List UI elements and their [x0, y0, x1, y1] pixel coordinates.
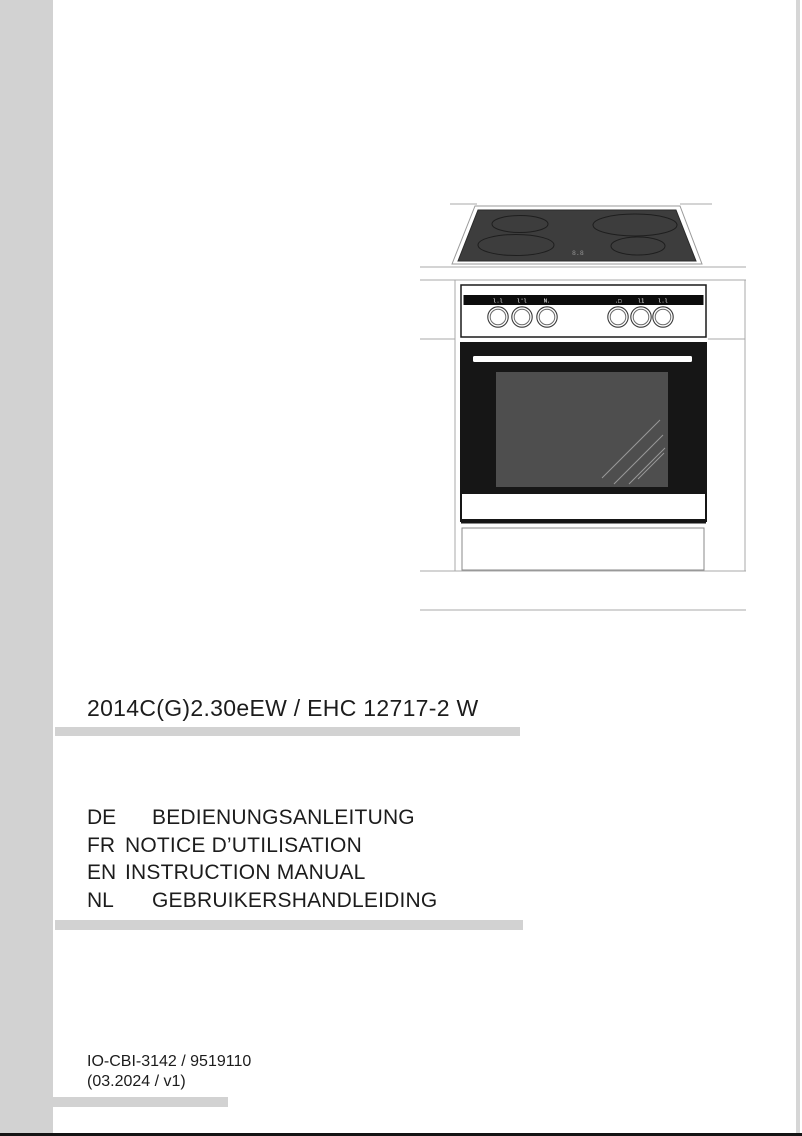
control-panel: l.l l'l N. .□ l1 l.l: [461, 285, 706, 337]
oven-door-window: [496, 372, 668, 487]
knob-6: [653, 307, 673, 327]
ceramic-hob: 8.8: [452, 206, 702, 264]
language-row-nl: NLGEBRUIKERSHANDLEIDING: [87, 887, 437, 915]
hob-timer-display: 8.8: [572, 249, 584, 257]
language-underline-bar: [55, 920, 523, 930]
oven: [461, 343, 706, 570]
manual-cover-page: 8.8 l.l l'l N. .□ l1 l.l: [0, 0, 802, 1136]
oven-base-trim: [461, 519, 706, 524]
language-row-en: ENINSTRUCTION MANUAL: [87, 859, 437, 887]
oven-door-handle: [473, 356, 692, 362]
knob-5: [631, 307, 651, 327]
plinth-drawer: [462, 528, 704, 570]
language-code: FR: [87, 832, 125, 860]
hotplate-front-left-icon: l.l: [493, 299, 503, 305]
left-margin-band: [0, 0, 53, 1136]
language-manual-title: GEBRUIKERSHANDLEIDING: [152, 889, 437, 912]
language-row-fr: FRNOTICE D’UTILISATION: [87, 832, 437, 860]
language-row-de: DEBEDIENUNGSANLEITUNG: [87, 804, 437, 832]
language-manual-title: NOTICE D’UTILISATION: [125, 834, 362, 857]
hotplate-right-icon: N.: [544, 299, 551, 305]
title-underline-bar: [55, 727, 520, 736]
knob-3: [537, 307, 557, 327]
oven-temperature-icon: l1: [638, 299, 645, 305]
footer: IO-CBI-3142 / 9519110 (03.2024 / v1): [87, 1052, 251, 1091]
cooker-illustration: 8.8 l.l l'l N. .□ l1 l.l: [415, 195, 802, 615]
knob-1: [488, 307, 508, 327]
knob-4: [608, 307, 628, 327]
model-title: 2014C(G)2.30eEW / EHC 12717-2 W: [87, 696, 479, 720]
document-code: IO-CBI-3142 / 9519110: [87, 1052, 251, 1072]
oven-light-icon: .□: [615, 299, 622, 305]
footer-bar: [0, 1097, 228, 1107]
language-list: DEBEDIENUNGSANLEITUNG FRNOTICE D’UTILISA…: [87, 804, 437, 914]
language-manual-title: INSTRUCTION MANUAL: [125, 861, 365, 884]
revision-date: (03.2024 / v1): [87, 1072, 251, 1092]
oven-function-icon: l.l: [658, 299, 668, 305]
hotplate-back-left-icon: l'l: [517, 299, 527, 305]
language-code: EN: [87, 859, 125, 887]
language-code: DE: [87, 804, 125, 832]
language-manual-title: BEDIENUNGSANLEITUNG: [152, 806, 415, 829]
knob-2: [512, 307, 532, 327]
language-code: NL: [87, 887, 125, 915]
